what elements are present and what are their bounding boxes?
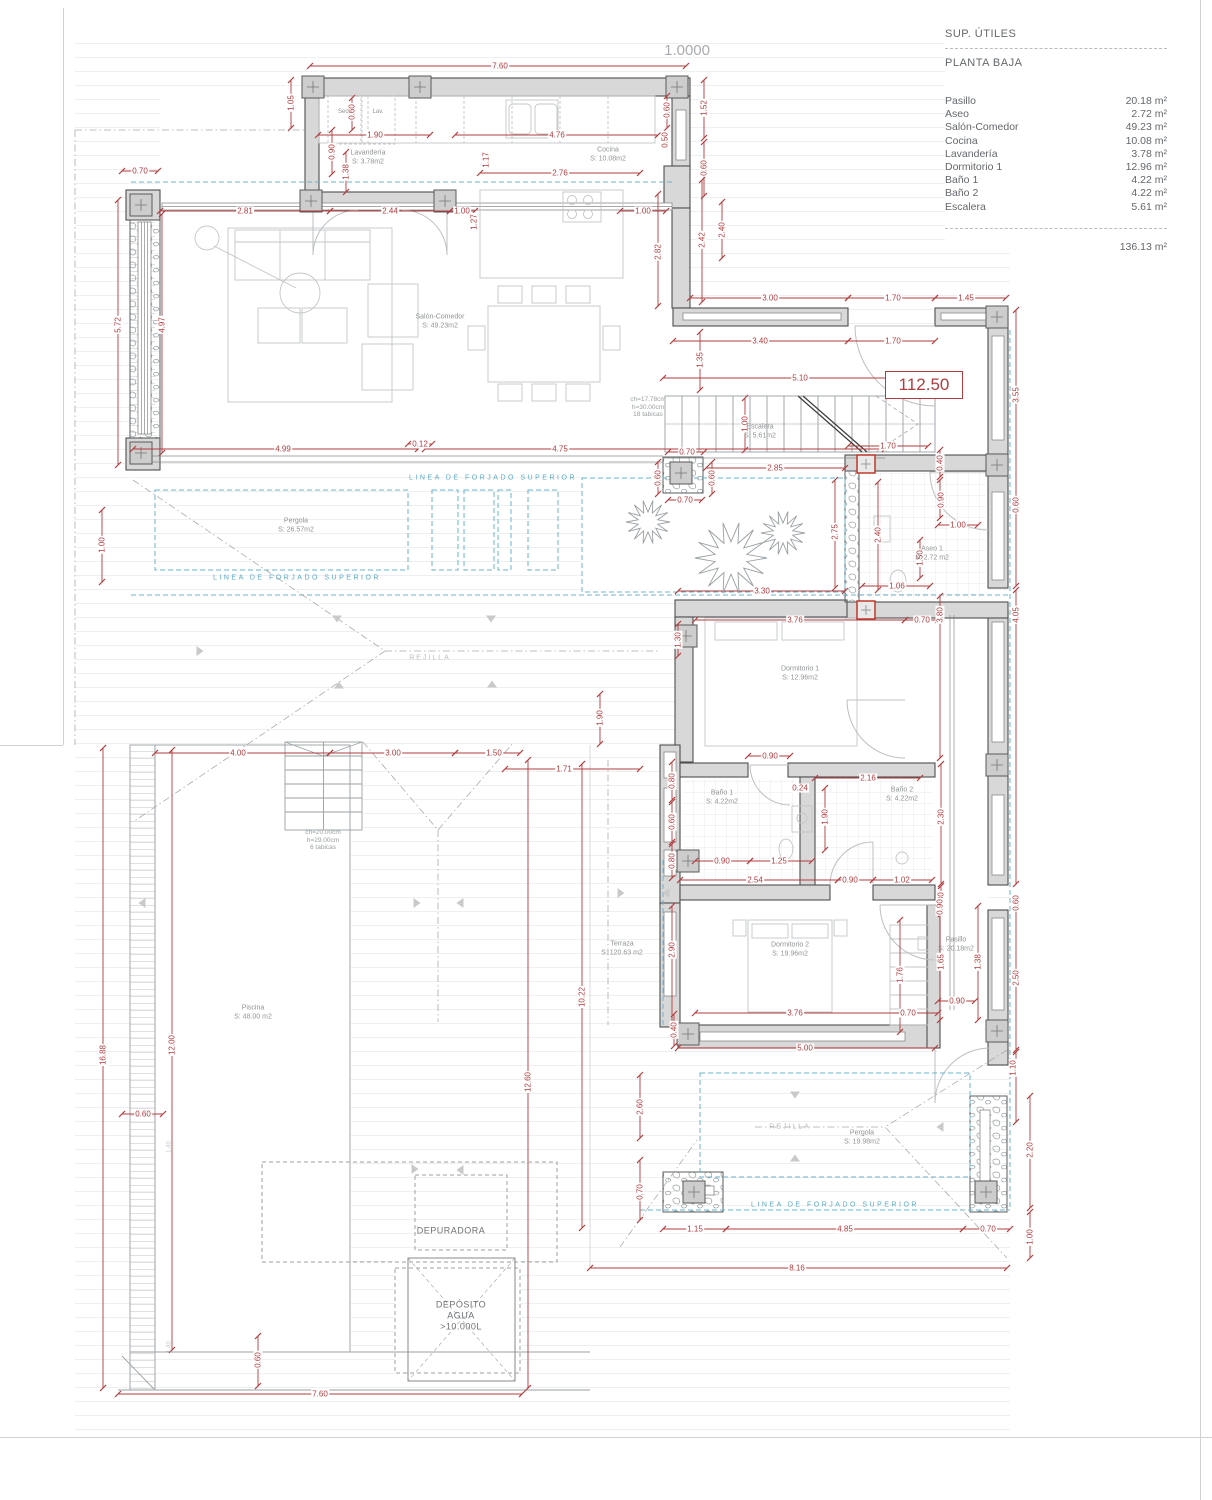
room-name: Baño 2 (945, 187, 978, 200)
dimension-label: 1.70 (879, 442, 897, 451)
note-text: DEPURADORA (417, 1226, 486, 1237)
dimension-label: 0.12 (411, 440, 429, 449)
dimension-label: 1.45 (957, 294, 975, 303)
dimension-label: 0.60 (1012, 496, 1021, 514)
direction-arrow (663, 888, 670, 898)
legend-row: Salón-Comedor49.23 m² (945, 121, 1167, 134)
room-area: 4.22 m² (1131, 187, 1167, 200)
dimension-label: 8.16 (788, 1264, 806, 1273)
dimension-label: 1.00 (453, 207, 471, 216)
room-area: 49.23 m² (1126, 121, 1167, 134)
dimension-label: 1.00 (98, 536, 107, 554)
direction-arrow (334, 682, 344, 689)
dimension-label: 3.76 (786, 616, 804, 625)
dimension-label: 3.00 (761, 294, 779, 303)
dimension-label: 12.60 (524, 1071, 533, 1093)
dimension-label: 1.76 (896, 966, 905, 984)
dimension-label: 4.00 (229, 749, 247, 758)
dimension-label: 1.38 (974, 953, 983, 971)
dimension-label: 3.40 (751, 337, 769, 346)
dimension-label: 1.71 (555, 765, 573, 774)
scale-label: 1.0000 (664, 42, 710, 59)
legend-total: 136.13 m² (945, 229, 1167, 253)
dimension-label: 0.90 (936, 898, 945, 916)
room-label: PergolaS: 19.98m2 (844, 1130, 880, 1147)
direction-arrow (414, 898, 421, 908)
dimension-label: 1.06 (888, 582, 906, 591)
legend-rows: Pasillo20.18 m²Aseo2.72 m²Salón-Comedor4… (945, 83, 1167, 228)
dimension-label: 5.72 (114, 316, 123, 334)
grey-text: REJILLA (769, 1124, 811, 1131)
room-name: Baño 1 (945, 174, 978, 187)
level-mark: 112.50 (885, 371, 963, 399)
dimension-label: 0.90 (761, 752, 779, 761)
room-name: Cocina (945, 135, 978, 148)
dimension-label: 0.70 (636, 1183, 645, 1201)
dimension-label: 0.60 (700, 159, 709, 177)
dimension-label: 7.60 (491, 62, 509, 71)
direction-arrow (197, 646, 204, 656)
legend-row: Lavandería3.78 m² (945, 148, 1167, 161)
dimension-label: 4.99 (274, 445, 292, 454)
room-name: Pasillo (945, 95, 976, 108)
dimension-label: 5.00 (796, 1044, 814, 1053)
room-label: Baño 2S: 4.22m2 (886, 787, 918, 804)
legend-row: Pasillo20.18 m² (945, 95, 1167, 108)
dimension-label: 4.76 (548, 131, 566, 140)
dimension-label: 1.52 (700, 99, 709, 117)
dimension-label: 1.10 (1009, 1059, 1018, 1077)
room-label: Baño 1S: 4.22m2 (706, 790, 738, 807)
legend-row: Baño 14.22 m² (945, 174, 1167, 187)
dimension-label: 4.85 (836, 1225, 854, 1234)
room-name: Aseo (945, 108, 969, 121)
dimension-label: 2.20 (1026, 1141, 1035, 1159)
dimension-label: 0.60 (654, 469, 663, 487)
dimension-label: 1.27 (470, 213, 479, 231)
dimension-label: 0.70 (979, 1225, 997, 1234)
room-area: 20.18 m² (1126, 95, 1167, 108)
forjado-text: LINEA DE FORJADO SUPERIOR (409, 475, 577, 482)
dimension-label: 1.05 (287, 94, 296, 112)
dimension-label: 1.15 (686, 1225, 704, 1234)
room-area: 3.78 m² (1131, 148, 1167, 161)
grey-text: Lav. (373, 109, 384, 115)
room-name: Lavandería (945, 148, 998, 161)
dimension-label: 2.60 (636, 1098, 645, 1116)
dimension-label: 0.40 (670, 1021, 679, 1039)
direction-arrow (487, 681, 497, 688)
dimension-label: 2.54 (746, 876, 764, 885)
dimension-label: 0.90 (713, 857, 731, 866)
dimension-label: 0.70 (678, 448, 696, 457)
dimension-label: 3.00 (384, 749, 402, 758)
note-text: 1.40 (166, 1141, 174, 1153)
direction-arrow (937, 1122, 944, 1132)
dimension-label: 10.22 (578, 986, 587, 1008)
direction-arrow (790, 1092, 800, 1099)
dimension-label: 0.90 (328, 143, 337, 161)
dimension-label: 0.70 (913, 616, 931, 625)
dimension-label: 2.40 (874, 526, 883, 544)
direction-arrow (457, 1165, 464, 1175)
dimension-label: 0.80 (668, 772, 677, 790)
dimension-label: 0.60 (708, 469, 717, 487)
direction-arrow (412, 1164, 419, 1174)
forjado-text: LINEA DE FORJADO SUPERIOR (213, 575, 381, 582)
dimension-label: 2.40 (718, 221, 727, 239)
legend-subtitle: PLANTA BAJA (945, 49, 1167, 83)
forjado-text: LINEA DE FORJADO SUPERIOR (751, 1202, 919, 1209)
dimension-label: 2.90 (668, 941, 677, 959)
dimension-label: 1.65 (937, 953, 946, 971)
dimension-label: 0.60 (663, 101, 672, 119)
dimension-label: 1.38 (342, 163, 351, 181)
legend-row: Aseo2.72 m² (945, 108, 1167, 121)
note-text: ch=17.78cmh=30.00cm18 tabicas (630, 396, 666, 419)
room-area: 4.22 m² (1131, 174, 1167, 187)
dimension-label: 0.70 (676, 496, 694, 505)
dimension-label: 2.30 (937, 808, 946, 826)
dimension-label: 2.81 (236, 207, 254, 216)
room-name: Escalera (945, 201, 986, 214)
room-label: PergolaS: 26.57m2 (278, 518, 314, 535)
dimension-label: 2.75 (831, 523, 840, 541)
dimension-label: 1.50 (485, 749, 503, 758)
room-label: CocinaS: 10.08m2 (590, 147, 626, 164)
dimension-label: 2.85 (766, 464, 784, 473)
dimension-label: 2.42 (698, 231, 707, 249)
dimension-label: 0.60 (1012, 894, 1021, 912)
dimension-label: 0.70 (131, 167, 149, 176)
dimension-label: 1.90 (366, 131, 384, 140)
dimension-label: 5.10 (791, 374, 809, 383)
floor-plan-sheet: 7.601.050.601.904.760.601.520.500.602.40… (0, 0, 1212, 1500)
room-label: PiscinaS: 48.00 m2 (234, 1005, 272, 1022)
dimension-label: 1.90 (596, 709, 605, 727)
dimension-label: 4.05 (1012, 606, 1021, 624)
grey-text: REJILLA (409, 655, 451, 662)
direction-arrow (332, 616, 342, 623)
dimension-label: 0.80 (668, 852, 677, 870)
dimension-label: 0.60 (668, 813, 677, 831)
legend-title: SUP. ÚTILES (945, 28, 1167, 48)
dimension-label: 0.60 (134, 1110, 152, 1119)
dimension-label: 2.50 (1012, 969, 1021, 987)
dimension-label: 2.16 (859, 774, 877, 783)
dimension-label: 1.70 (884, 337, 902, 346)
dimension-label: 3.76 (786, 1009, 804, 1018)
dimension-label: 7.60 (311, 1390, 329, 1399)
legend-row: Escalera5.61 m² (945, 201, 1167, 214)
dimension-label: 1.17 (482, 151, 491, 169)
room-area: 5.61 m² (1131, 201, 1167, 214)
room-label: LavanderíaS: 3.78m2 (350, 150, 385, 167)
grey-text: Sec. (338, 109, 350, 115)
dimension-label: 1.00 (634, 207, 652, 216)
dimension-label: 1.00 (1026, 1228, 1035, 1246)
dimension-label: 0.90 (841, 876, 859, 885)
room-name: Salón-Comedor (945, 121, 1019, 134)
room-label: Aseo 1S: 2.72 m2 (915, 546, 949, 563)
room-name: Dormitorio 1 (945, 161, 1002, 174)
dimension-label: 2.44 (381, 207, 399, 216)
legend-row: Cocina10.08 m² (945, 135, 1167, 148)
note-text: DEPÓSITOAGUA>10.000L (436, 1300, 486, 1333)
dimension-label: 1.70 (884, 294, 902, 303)
room-area: 10.08 m² (1126, 135, 1167, 148)
direction-arrow (618, 888, 625, 898)
room-label: Dormitorio 2S: 19.96m2 (771, 942, 809, 959)
room-area: 12.96 m² (1126, 161, 1167, 174)
dimension-label: 0.40 (936, 454, 945, 472)
room-label: Dormitorio 1S: 12.96m2 (781, 666, 819, 683)
dimension-label: 0.24 (791, 784, 809, 793)
dimension-label: 1.35 (696, 351, 705, 369)
dimension-label: 3.55 (1012, 386, 1021, 404)
dimension-label: 4.97 (158, 316, 167, 334)
dimension-label: 0.90 (948, 997, 966, 1006)
dimension-label: 2.76 (551, 169, 569, 178)
dimension-label: 0.70 (899, 1009, 917, 1018)
dimension-label: 3.80 (936, 606, 945, 624)
dimension-label: 1.00 (949, 521, 967, 530)
dimension-label: 1.30 (674, 631, 683, 649)
dimension-label: 1.02 (893, 876, 911, 885)
room-label: PasilloS: 20.18m2 (938, 937, 974, 954)
room-area: 2.72 m² (1131, 108, 1167, 121)
dimension-label: 12.00 (168, 1034, 177, 1056)
legend-row: Baño 24.22 m² (945, 187, 1167, 200)
legend-row: Dormitorio 112.96 m² (945, 161, 1167, 174)
room-label: TerrazaS: 120.63 m2 (601, 941, 643, 958)
note-text: ch=20.00cmh=29.00cm6 tabicas (305, 829, 341, 852)
direction-arrow (457, 898, 464, 908)
legend-panel: SUP. ÚTILES PLANTA BAJA Pasillo20.18 m²A… (945, 28, 1167, 253)
dimension-label: 3.30 (753, 587, 771, 596)
room-label: Salón-ComedorS: 49.23m2 (415, 314, 464, 331)
dimension-label: 0.50 (661, 131, 670, 149)
dimension-label: 2.82 (654, 243, 663, 261)
direction-arrow (139, 898, 146, 908)
note-text: 1.40 (166, 1341, 174, 1353)
dimension-label: 1.90 (821, 808, 830, 826)
dimension-label: 16.88 (99, 1044, 108, 1066)
dimension-label: 0.60 (254, 1351, 263, 1369)
dimension-label: 1.25 (770, 857, 788, 866)
direction-arrow (486, 616, 496, 623)
direction-arrow (790, 1155, 800, 1162)
dimension-label: 0.90 (937, 491, 946, 509)
room-label: EscaleraS: 5.61m2 (744, 424, 776, 441)
dimension-label: 4.75 (551, 445, 569, 454)
